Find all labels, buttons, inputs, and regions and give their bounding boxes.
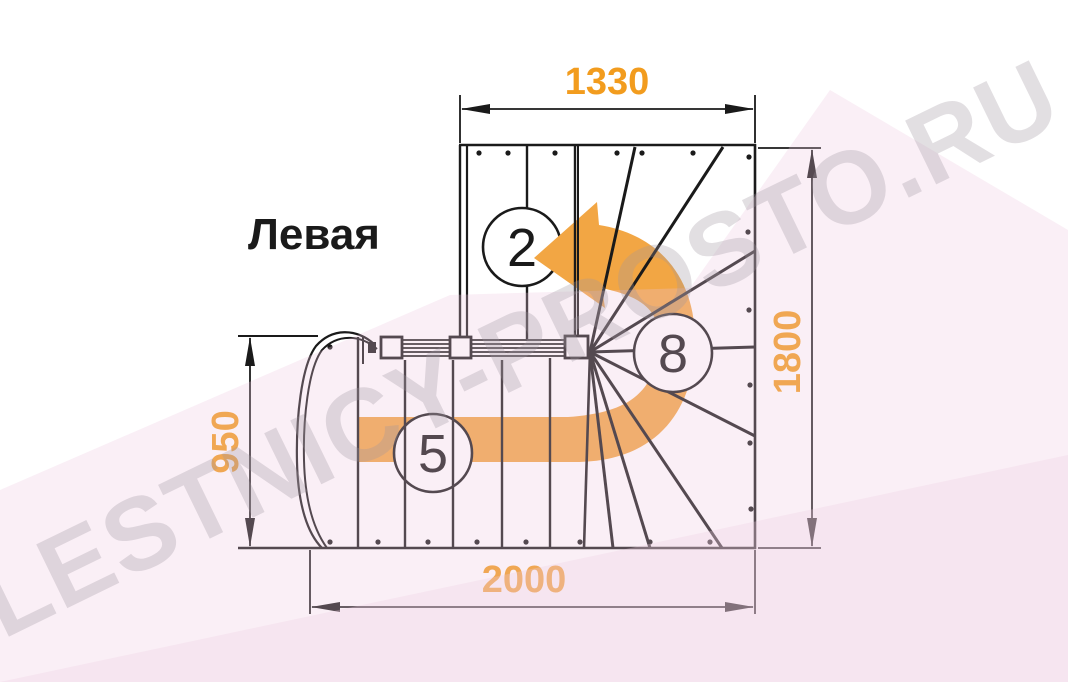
staircase-plan-page: Левая [0,0,1068,682]
dimension-top-label: 1330 [565,61,650,103]
staircase-plan-drawing: Левая [0,0,1068,682]
step-number-upper: 2 [507,218,537,278]
plan-title: Левая [248,210,380,259]
